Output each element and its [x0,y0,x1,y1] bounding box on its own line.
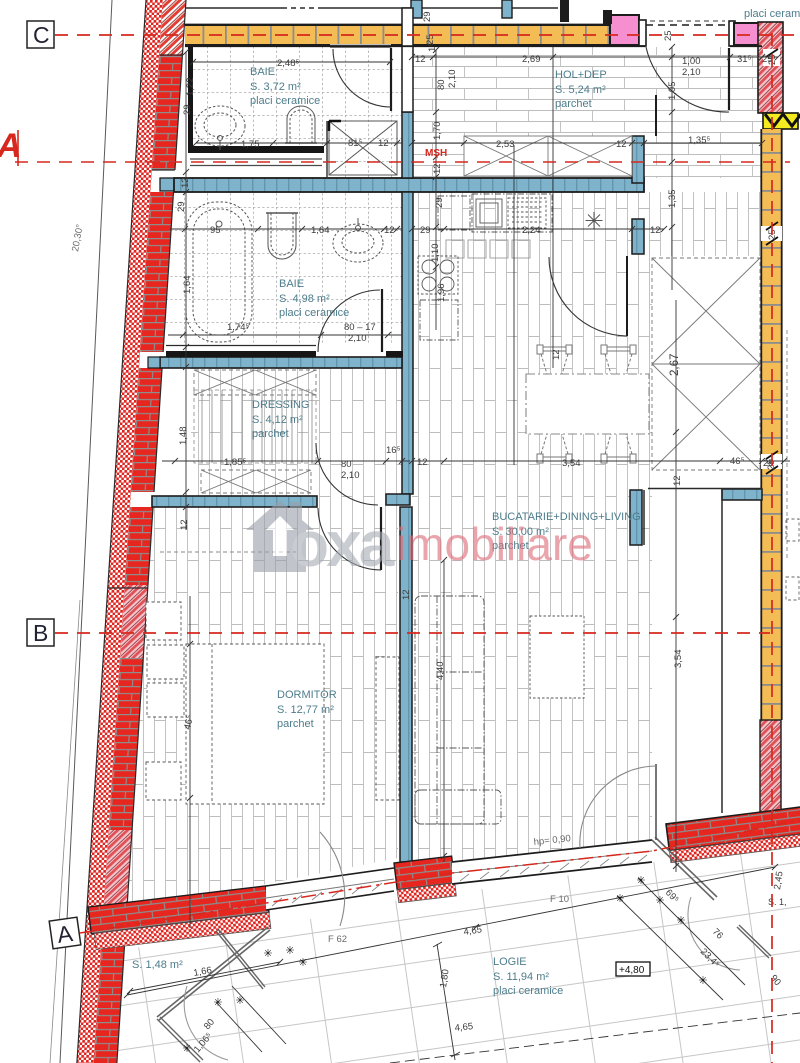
svg-text:HOL+DEP: HOL+DEP [555,69,607,81]
svg-text:29: 29 [176,201,187,212]
svg-text:✳: ✳ [263,948,272,960]
svg-text:1,35⁵: 1,35⁵ [688,135,710,146]
svg-text:2,10: 2,10 [447,70,458,89]
svg-text:1,05: 1,05 [667,82,678,101]
svg-text:95: 95 [210,225,221,236]
svg-text:✳: ✳ [235,995,244,1007]
svg-text:1,00: 1,00 [682,56,701,67]
svg-text:C: C [33,22,50,48]
svg-text:1,22: 1,22 [185,78,196,97]
svg-text:placi ceram: placi ceram [744,8,800,20]
svg-text:12: 12 [401,589,412,600]
svg-text:S. 3,72 m²: S. 3,72 m² [250,81,301,93]
svg-text:1,64: 1,64 [182,276,193,295]
svg-text:parchet: parchet [252,428,289,440]
svg-text:3,54: 3,54 [673,650,684,669]
svg-text:1,48: 1,48 [178,427,189,446]
svg-text:DORMITOR: DORMITOR [277,689,337,701]
svg-text:placi ceramice: placi ceramice [493,985,563,997]
svg-text:12: 12 [378,138,389,149]
svg-text:1,75: 1,75 [241,139,260,150]
svg-text:BAIE: BAIE [279,278,304,290]
svg-text:80: 80 [436,79,447,90]
svg-text:2,69: 2,69 [522,54,541,65]
svg-text:2,24: 2,24 [522,225,541,236]
svg-text:S. 5,24 m²: S. 5,24 m² [555,84,606,96]
svg-text:placi ceramice: placi ceramice [250,95,320,107]
svg-text:BAIE: BAIE [250,66,275,78]
svg-text:F 10: F 10 [550,894,569,905]
svg-text:3,54: 3,54 [562,458,581,469]
svg-text:80: 80 [341,459,352,470]
svg-text:✳: ✳ [298,957,307,969]
svg-text:S. 1,: S. 1, [768,897,787,907]
svg-text:1,74⁵: 1,74⁵ [227,322,249,333]
svg-text:✳: ✳ [182,1043,191,1055]
svg-text:1,35: 1,35 [667,190,678,209]
svg-text:29: 29 [182,104,193,115]
svg-text:12: 12 [179,519,190,530]
svg-text:2,10: 2,10 [682,67,701,78]
svg-text:2,10: 2,10 [341,470,360,481]
svg-text:S. 12,77 m²: S. 12,77 m² [277,704,334,716]
svg-text:parchet: parchet [555,98,592,110]
svg-text:imobiliare: imobiliare [396,518,593,570]
svg-text:parchet: parchet [277,718,314,730]
svg-text:1,70: 1,70 [432,122,443,141]
svg-text:46⁵: 46⁵ [730,456,745,467]
svg-text:S. 4,98 m²: S. 4,98 m² [279,293,330,305]
svg-text:16⁵: 16⁵ [386,445,401,456]
svg-text:12: 12 [672,475,683,486]
svg-text:F 62: F 62 [328,934,347,945]
svg-text:✳: ✳ [636,875,645,887]
svg-text:1,10: 1,10 [430,244,441,263]
svg-text:+4,80: +4,80 [619,965,645,976]
svg-text:S. 1,48 m²: S. 1,48 m² [132,959,183,971]
svg-text:4,40: 4,40 [435,662,446,681]
svg-text:2,10: 2,10 [348,333,367,344]
svg-text:2,48⁵: 2,48⁵ [277,58,299,69]
svg-text:1,96: 1,96 [436,284,447,303]
svg-text:1,64: 1,64 [311,225,330,236]
svg-text:12: 12 [415,54,426,65]
svg-text:MŞH: MŞH [425,148,447,159]
svg-text:2,67: 2,67 [669,354,681,376]
svg-text:✳: ✳ [655,895,664,907]
svg-text:2,53: 2,53 [496,139,515,150]
svg-text:✳: ✳ [676,915,685,927]
svg-text:81⁵: 81⁵ [348,138,363,149]
svg-text:✳: ✳ [615,893,624,905]
svg-text:B: B [33,620,48,646]
svg-text:25: 25 [425,34,436,45]
svg-text:✳: ✳ [698,975,707,987]
svg-text:✳: ✳ [213,997,222,1009]
svg-text:DRESSING: DRESSING [252,399,309,411]
svg-text:29: 29 [422,11,433,22]
svg-text:S. 4,12 m²: S. 4,12 m² [252,414,303,426]
svg-text:12: 12 [650,225,661,236]
svg-text:29: 29 [434,197,445,208]
svg-text:1,85⁵: 1,85⁵ [224,457,246,468]
svg-text:80 – 17: 80 – 17 [344,322,376,333]
svg-text:12: 12 [551,349,562,360]
svg-text:✳: ✳ [285,945,294,957]
svg-text:31⁵: 31⁵ [737,54,752,65]
svg-text:12: 12 [616,139,627,150]
svg-text:12: 12 [417,457,428,468]
svg-text:29: 29 [420,225,431,236]
svg-text:12: 12 [432,163,443,174]
svg-text:4,65: 4,65 [454,1021,474,1034]
svg-text:S. 11,94 m²: S. 11,94 m² [493,971,549,983]
svg-text:12: 12 [180,177,191,188]
svg-text:LOGIE: LOGIE [493,956,527,968]
svg-text:12: 12 [384,225,395,236]
svg-text:placi ceramice: placi ceramice [279,307,349,319]
svg-text:oxa: oxa [290,508,395,580]
